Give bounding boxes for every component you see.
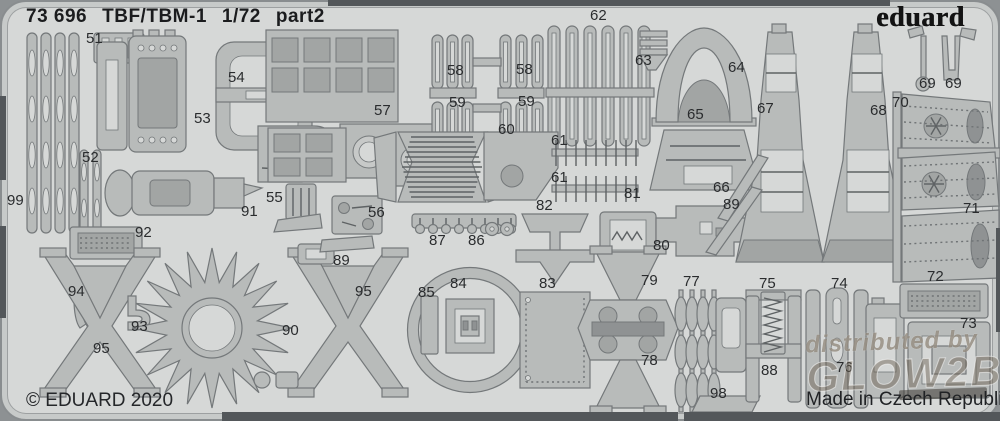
part-label-59: 59 [518,94,535,109]
part-label-73: 73 [960,316,977,331]
part-label-89: 89 [723,197,740,212]
copyright-text: © EDUARD 2020 [26,390,173,412]
part-label-99: 99 [7,193,24,208]
part-label-74: 74 [831,276,848,291]
left-edge-shadow-upper [0,96,6,180]
part-label-94: 94 [68,284,85,299]
part-label-69: 69 [945,76,962,91]
part-label-53: 53 [194,111,211,126]
sheet-code: 73 696 [26,6,87,27]
part-label-75: 75 [759,276,776,291]
part-label-86: 86 [468,233,485,248]
part-label-79: 79 [641,273,658,288]
part-label-85: 85 [418,285,435,300]
part-label-89: 89 [333,253,350,268]
part-label-54: 54 [228,70,245,85]
part-label-56: 56 [368,205,385,220]
part-label-80: 80 [653,238,670,253]
part-label-52: 52 [82,150,99,165]
part-label-82: 82 [536,198,553,213]
bottom-edge-shadow-left [222,412,678,421]
part-label-66: 66 [713,180,730,195]
part-label-51: 51 [86,31,103,46]
part-label-61: 61 [551,170,568,185]
part-label-92: 92 [135,225,152,240]
part-label-90: 90 [282,323,299,338]
kit-scale: 1/72 [222,6,261,27]
part-label-95: 95 [355,284,372,299]
sheet-title: 73 696TBF/TBM-11/72part2 [26,6,340,28]
left-edge-shadow-lower [0,226,6,318]
part-label-61: 61 [551,133,568,148]
part-label-55: 55 [266,190,283,205]
part-label-60: 60 [498,122,515,137]
eduard-logo: eduard [876,2,965,34]
part-label-76: 76 [836,360,853,375]
made-in-text: Made in Czech Republic [806,389,1000,411]
sheet-part: part2 [276,6,325,27]
part-label-69: 69 [919,76,936,91]
right-edge-shadow [996,228,1000,332]
part-label-64: 64 [728,60,745,75]
part-label-58: 58 [447,63,464,78]
top-edge-shadow [328,0,890,6]
part-label-87: 87 [429,233,446,248]
part-label-95: 95 [93,341,110,356]
bottom-edge-shadow-right [684,412,1000,421]
part-labels-layer: 5154535299919255569493959089955758595859… [0,0,1000,421]
part-label-88: 88 [761,363,778,378]
part-label-93: 93 [131,319,148,334]
part-label-84: 84 [450,276,467,291]
part-label-72: 72 [927,269,944,284]
part-label-57: 57 [374,103,391,118]
part-label-63: 63 [635,53,652,68]
part-label-81: 81 [624,186,641,201]
kit-name: TBF/TBM-1 [102,6,207,27]
part-label-70: 70 [892,95,909,110]
part-label-58: 58 [516,62,533,77]
part-label-65: 65 [687,107,704,122]
part-label-67: 67 [757,101,774,116]
part-label-78: 78 [641,353,658,368]
part-label-62: 62 [590,8,607,23]
part-label-68: 68 [870,103,887,118]
photoetch-fret-photo: 5154535299919255569493959089955758595859… [0,0,1000,421]
part-label-83: 83 [539,276,556,291]
part-label-91: 91 [241,204,258,219]
part-label-77: 77 [683,274,700,289]
part-label-71: 71 [963,201,980,216]
part-label-98: 98 [710,386,727,401]
part-label-59: 59 [449,95,466,110]
